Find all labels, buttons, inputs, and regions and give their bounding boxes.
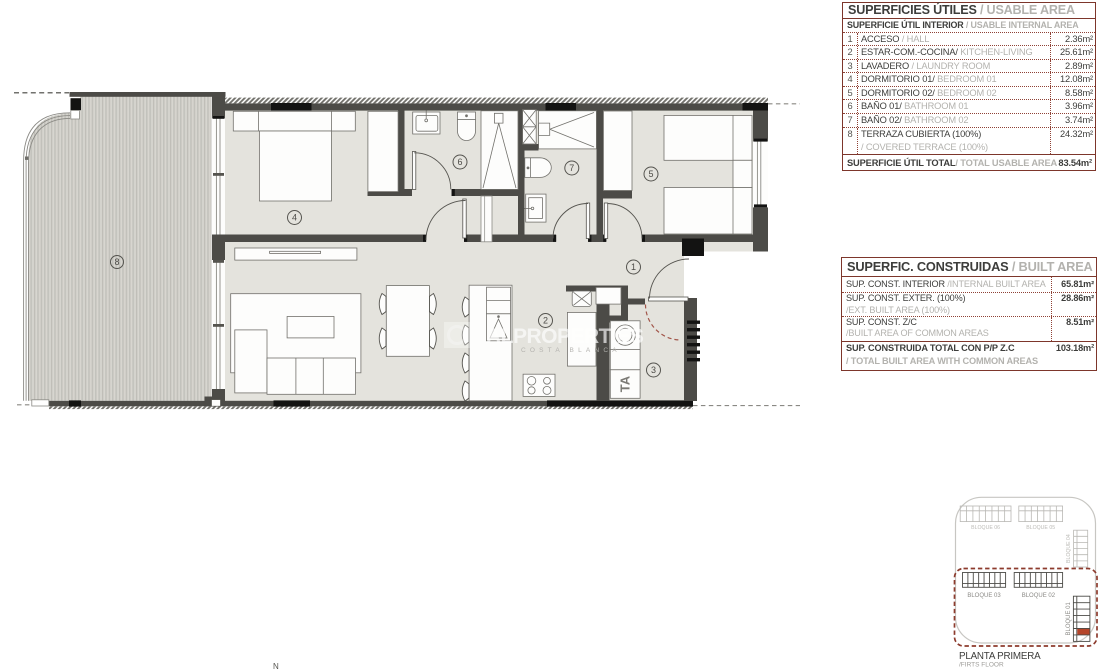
svg-text:7: 7 — [569, 163, 574, 173]
svg-text:TA: TA — [618, 375, 633, 392]
svg-text:BLOQUE 04: BLOQUE 04 — [1066, 534, 1072, 563]
svg-text:4: 4 — [292, 213, 297, 223]
svg-text:BLOQUE 03: BLOQUE 03 — [967, 593, 1001, 599]
svg-text:ALPROPERTIES: ALPROPERTIES — [486, 325, 644, 348]
svg-text:6: 6 — [457, 157, 462, 167]
svg-text:3: 3 — [651, 365, 656, 375]
svg-text:BLOQUE 06: BLOQUE 06 — [971, 525, 1000, 531]
svg-text:BLOQUE 05: BLOQUE 05 — [1026, 525, 1055, 531]
svg-text:1: 1 — [631, 262, 636, 272]
svg-text:COSTA BLANCA: COSTA BLANCA — [521, 347, 621, 354]
svg-text:8: 8 — [114, 257, 119, 267]
svg-text:BLOQUE 01: BLOQUE 01 — [1066, 601, 1072, 635]
svg-text:N: N — [273, 662, 279, 671]
svg-text:PLANTA PRIMERA: PLANTA PRIMERA — [959, 651, 1041, 662]
svg-text:BLOQUE 02: BLOQUE 02 — [1022, 593, 1056, 599]
svg-text:5: 5 — [648, 169, 653, 179]
svg-text:/FIRTS FLOOR: /FIRTS FLOOR — [959, 662, 1004, 669]
